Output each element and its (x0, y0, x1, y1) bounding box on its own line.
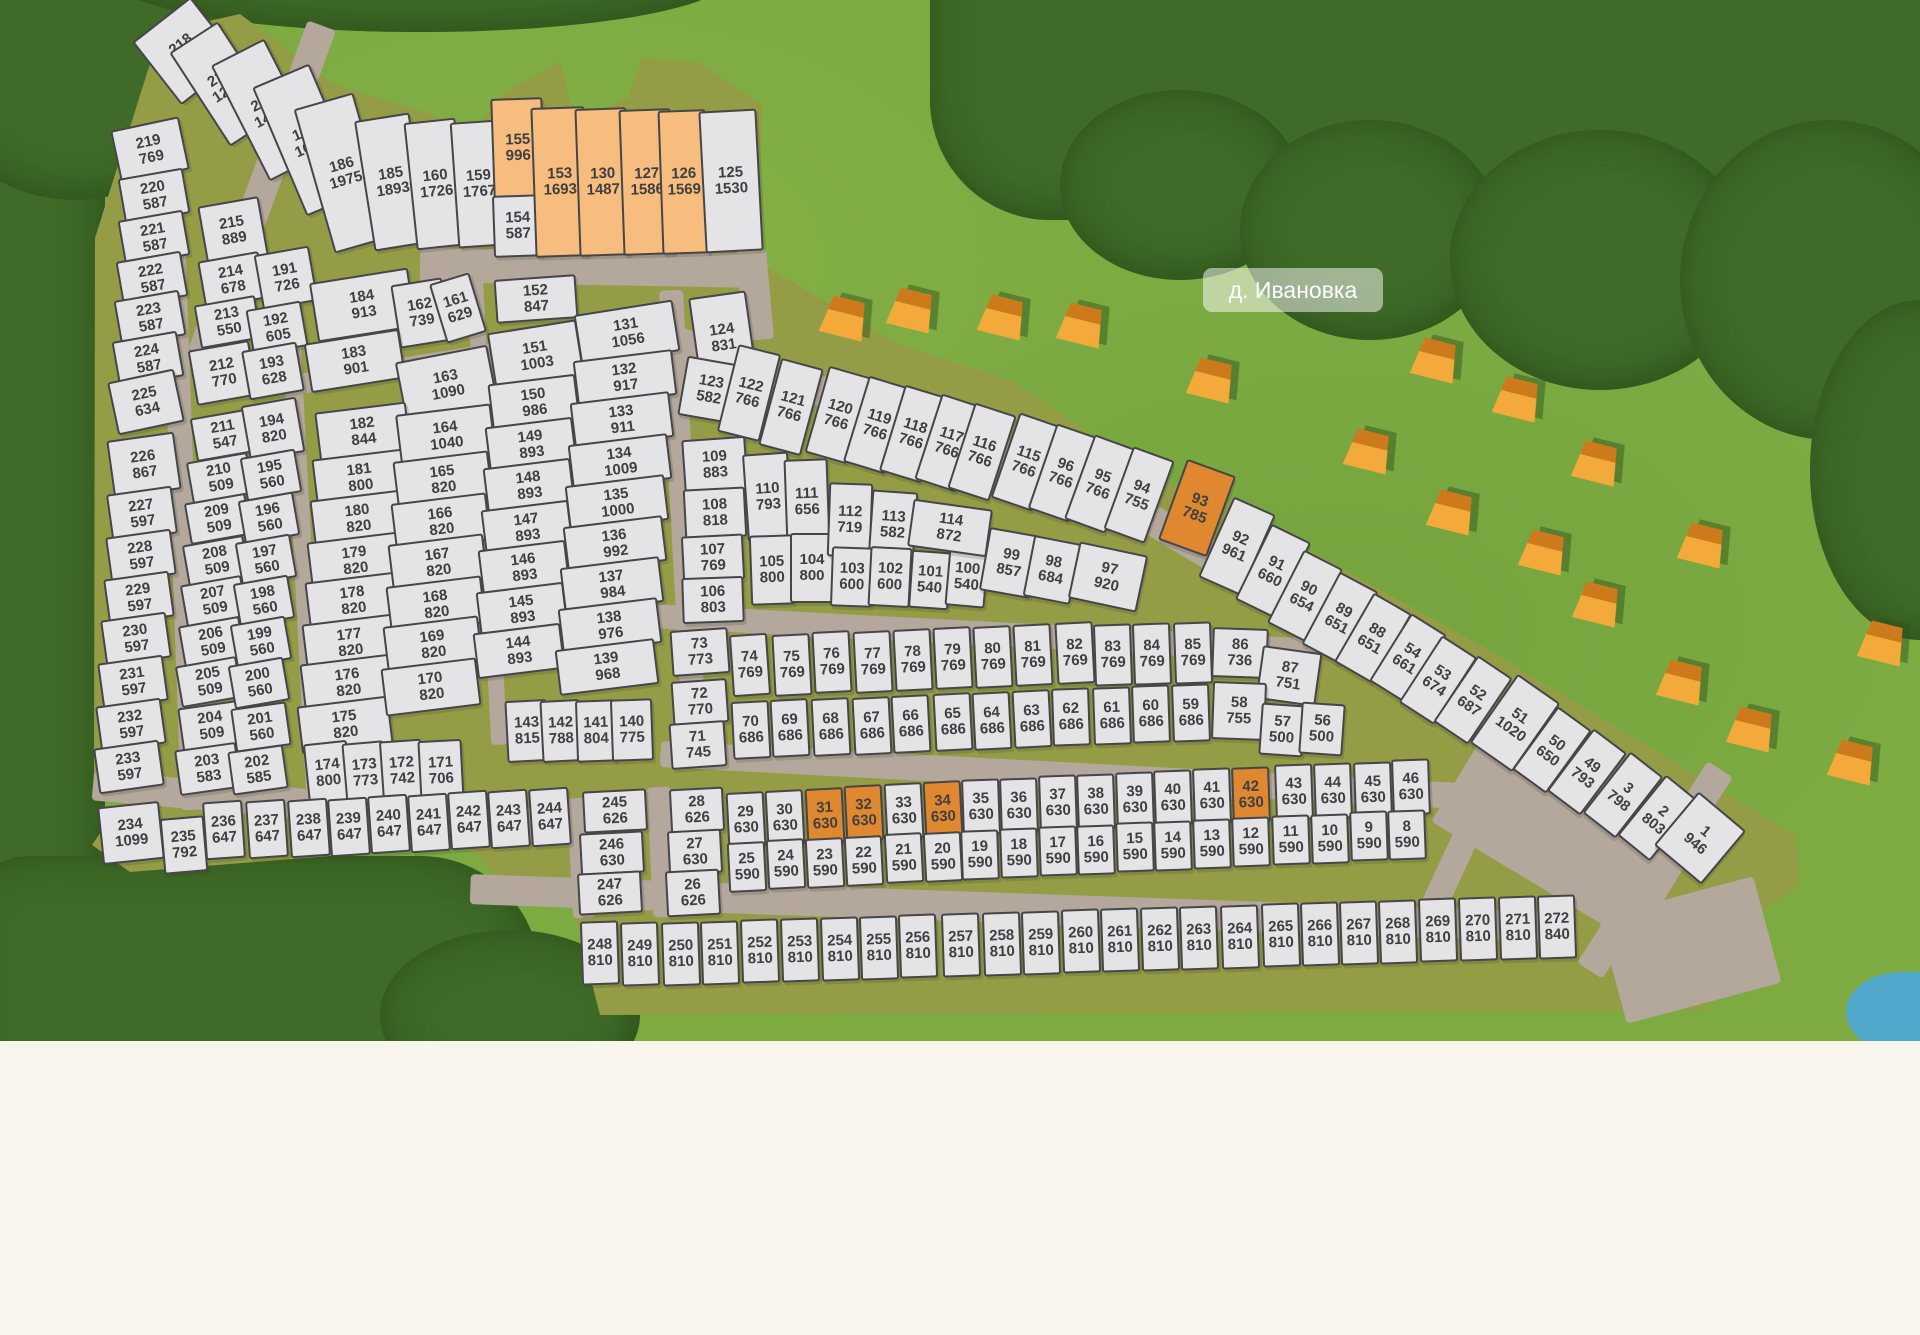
plot-area: 810 (587, 953, 613, 970)
plot-area: 560 (249, 640, 276, 660)
plot-21[interactable]: 21590 (884, 832, 925, 884)
plot-70[interactable]: 70686 (731, 700, 772, 760)
plot-11[interactable]: 11590 (1271, 814, 1311, 865)
plot-area: 769 (780, 664, 806, 681)
plot-66[interactable]: 66686 (891, 694, 932, 754)
plot-65[interactable]: 65686 (933, 692, 974, 752)
plot-area: 630 (1360, 790, 1386, 807)
plot-area: 647 (255, 828, 281, 846)
plot-241[interactable]: 241647 (407, 793, 451, 854)
plot-area: 810 (1107, 940, 1133, 957)
plot-area: 1893 (376, 179, 411, 200)
plot-74[interactable]: 74769 (729, 633, 771, 697)
plot-area: 560 (254, 558, 281, 578)
plot-area: 500 (1268, 729, 1294, 747)
plot-247[interactable]: 247626 (577, 870, 643, 915)
plot-85[interactable]: 85769 (1173, 621, 1213, 684)
plot-area: 630 (1281, 792, 1307, 809)
plot-area: 810 (1505, 928, 1531, 945)
plot-area: 509 (206, 517, 233, 537)
plot-242[interactable]: 242647 (447, 790, 491, 851)
plot-area: 893 (507, 649, 534, 668)
plot-area: 1003 (520, 353, 555, 374)
plot-area: 647 (497, 818, 523, 836)
plot-251[interactable]: 251810 (700, 920, 740, 985)
plot-area: 585 (246, 768, 273, 787)
plot-area: 810 (1307, 934, 1333, 951)
plot-area: 1569 (667, 181, 701, 198)
plot-105[interactable]: 105800 (749, 534, 795, 605)
plot-area: 769 (861, 661, 887, 678)
plot-77[interactable]: 77769 (852, 630, 893, 694)
plot-83[interactable]: 83769 (1093, 623, 1133, 686)
plot-area: 630 (1238, 795, 1264, 812)
plot-19[interactable]: 19590 (960, 829, 1000, 880)
plot-25[interactable]: 25590 (727, 841, 768, 893)
plot-152[interactable]: 152847 (494, 274, 579, 324)
plot-area: 810 (1186, 938, 1212, 955)
plot-area: 800 (759, 570, 785, 587)
plot-240[interactable]: 240647 (367, 794, 411, 855)
plot-40[interactable]: 40630 (1153, 769, 1193, 826)
plot-236[interactable]: 236647 (202, 800, 246, 861)
plot-area: 1099 (114, 831, 149, 850)
plot-261[interactable]: 261810 (1100, 907, 1140, 972)
plot-area: 560 (249, 725, 276, 744)
plot-270[interactable]: 270810 (1458, 896, 1498, 961)
plot-area: 739 (409, 311, 436, 331)
plot-28[interactable]: 28626 (669, 787, 725, 834)
plot-area: 883 (703, 464, 729, 482)
plot-37[interactable]: 37630 (1038, 774, 1078, 831)
plot-256[interactable]: 256810 (898, 913, 938, 978)
plot-area: 820 (431, 478, 458, 497)
plot-area: 597 (130, 512, 157, 531)
plot-area: 597 (127, 596, 154, 615)
plot-42[interactable]: 42630 (1231, 766, 1271, 823)
plot-80[interactable]: 80769 (972, 625, 1013, 689)
plot-271[interactable]: 271810 (1498, 895, 1538, 960)
plot-259[interactable]: 259810 (1021, 910, 1061, 975)
plot-239[interactable]: 239647 (327, 797, 371, 858)
plot-43[interactable]: 43630 (1274, 763, 1314, 820)
plot-area: 686 (1138, 714, 1164, 731)
plot-area: 500 (1308, 728, 1334, 746)
plot-67[interactable]: 67686 (852, 696, 893, 756)
plot-area: 628 (261, 369, 288, 389)
plot-area: 590 (774, 863, 800, 880)
plot-area: 769 (1100, 655, 1126, 672)
plot-35[interactable]: 35630 (961, 778, 1001, 835)
plot-area: 590 (1160, 846, 1186, 863)
plot-46[interactable]: 46630 (1391, 758, 1431, 815)
plot-area: 792 (172, 844, 198, 862)
plot-area: 684 (1037, 568, 1065, 588)
plot-258[interactable]: 258810 (982, 911, 1022, 976)
plot-area: 597 (119, 723, 146, 742)
plot-area: 547 (212, 433, 239, 453)
plot-area: 590 (892, 857, 918, 874)
plot-area: 686 (1058, 717, 1084, 734)
plot-17[interactable]: 17590 (1038, 825, 1078, 876)
plot-202[interactable]: 202585 (227, 744, 289, 795)
plot-76[interactable]: 76769 (811, 630, 852, 694)
plot-245[interactable]: 245626 (582, 788, 648, 833)
plot-area: 831 (711, 336, 738, 355)
plot-20[interactable]: 20590 (923, 831, 964, 883)
plot-84[interactable]: 84769 (1132, 622, 1172, 685)
plot-263[interactable]: 263810 (1179, 905, 1219, 970)
plot-area: 810 (1385, 932, 1411, 949)
plot-36[interactable]: 36630 (999, 777, 1039, 834)
plot-area: 1090 (431, 382, 467, 404)
plot-area: 736 (1227, 653, 1253, 670)
plot-area: 560 (257, 516, 284, 536)
plot-26[interactable]: 26626 (665, 869, 721, 918)
plot-191[interactable]: 191726 (254, 246, 319, 311)
plot-area: 1040 (429, 434, 464, 454)
plot-22[interactable]: 22590 (844, 835, 885, 887)
plot-61[interactable]: 61686 (1092, 686, 1132, 745)
plot-237[interactable]: 237647 (245, 799, 289, 860)
plot-area: 630 (1160, 798, 1186, 815)
plot-number: 58 (1231, 695, 1248, 712)
plot-area: 913 (351, 303, 378, 323)
plot-39[interactable]: 39630 (1115, 771, 1155, 828)
plot-252[interactable]: 252810 (740, 918, 780, 983)
plot-area: 976 (598, 624, 625, 643)
plot-69[interactable]: 69686 (770, 698, 811, 758)
plot-area: 770 (211, 371, 238, 391)
plot-area: 810 (627, 954, 653, 971)
plot-area: 590 (813, 862, 839, 879)
plot-23[interactable]: 23590 (805, 837, 846, 889)
plot-area: 719 (837, 520, 863, 537)
plot-area: 509 (200, 640, 227, 660)
plot-area: 630 (600, 852, 626, 869)
plot-area: 810 (1227, 937, 1253, 954)
plot-56[interactable]: 56500 (1298, 702, 1346, 757)
plot-244[interactable]: 244647 (528, 787, 572, 848)
plot-257[interactable]: 257810 (941, 912, 981, 977)
plot-area: 590 (1238, 842, 1264, 859)
plot-44[interactable]: 44630 (1313, 762, 1353, 819)
plot-area: 810 (668, 954, 694, 971)
plot-area: 686 (899, 723, 925, 740)
plot-267[interactable]: 267810 (1339, 900, 1379, 965)
plot-area: 810 (827, 949, 853, 966)
plot-area: 509 (202, 599, 229, 619)
plot-area: 647 (538, 816, 564, 834)
plot-area: 810 (747, 951, 773, 968)
land-plot-map: 2187772171265216144719016771861975185189… (0, 0, 1920, 1335)
plot-area: 706 (429, 770, 455, 787)
plot-area: 901 (343, 359, 370, 379)
plot-253[interactable]: 253810 (780, 917, 820, 982)
plot-34[interactable]: 34630 (923, 780, 964, 838)
plot-area: 893 (519, 443, 546, 462)
plot-area: 590 (1278, 840, 1304, 857)
plot-number: 86 (1232, 637, 1249, 654)
plot-64[interactable]: 64686 (972, 691, 1013, 751)
plot-area: 686 (778, 727, 804, 744)
plot-area: 540 (916, 579, 942, 597)
plot-235[interactable]: 235792 (160, 815, 209, 875)
plot-area: 626 (598, 892, 624, 909)
plot-79[interactable]: 79769 (932, 626, 973, 690)
plot-area: 857 (995, 561, 1022, 581)
plot-73[interactable]: 73773 (669, 627, 730, 677)
plot-266[interactable]: 266810 (1300, 901, 1340, 966)
plot-area: 800 (799, 568, 824, 584)
plot-area: 647 (457, 819, 483, 837)
plot-15[interactable]: 15590 (1115, 821, 1155, 872)
plot-area: 889 (221, 229, 248, 249)
plot-249[interactable]: 249810 (620, 921, 660, 986)
plot-area: 634 (134, 399, 162, 420)
plot-area: 840 (1544, 927, 1570, 944)
plot-area: 769 (981, 656, 1007, 673)
plot-area: 820 (261, 427, 288, 447)
plot-10[interactable]: 10590 (1310, 813, 1350, 864)
plot-area: 597 (129, 554, 156, 573)
plot-area: 810 (707, 953, 733, 970)
plot-area: 626 (603, 810, 629, 827)
plot-area: 587 (142, 194, 169, 214)
plot-area: 1726 (419, 182, 454, 201)
plot-area: 815 (515, 730, 541, 747)
plot-area: 920 (1092, 574, 1120, 595)
plot-area: 820 (341, 599, 368, 618)
plot-area: 686 (1178, 713, 1204, 730)
plot-area: 810 (1147, 939, 1173, 956)
plot-area: 560 (247, 681, 274, 701)
plot-108[interactable]: 108818 (683, 486, 748, 539)
plot-area: 810 (1068, 941, 1094, 958)
village-label: д. Ивановка (1203, 268, 1383, 312)
plot-area: 600 (839, 577, 865, 594)
plot-area: 770 (688, 701, 714, 719)
plot-area: 590 (931, 856, 957, 873)
plot-area: 630 (852, 812, 878, 829)
plot-area: 1056 (611, 330, 646, 351)
plot-area: 810 (989, 944, 1015, 961)
plot-125[interactable]: 1251530 (698, 109, 763, 254)
plot-area: 820 (426, 561, 453, 580)
plot-area: 1693 (543, 181, 577, 198)
plot-area: 630 (1006, 806, 1032, 823)
plot-area: 818 (703, 512, 729, 529)
plot-14[interactable]: 14590 (1153, 820, 1193, 871)
plot-12[interactable]: 12590 (1231, 816, 1271, 867)
plot-area: 775 (619, 730, 645, 747)
plot-area: 540 (953, 576, 979, 594)
plot-262[interactable]: 262810 (1140, 906, 1180, 971)
plot-area: 810 (866, 948, 892, 965)
plot-area: 630 (1122, 800, 1148, 817)
plot-area: 647 (377, 823, 403, 841)
plot-72[interactable]: 72770 (671, 678, 730, 726)
plot-area: 600 (877, 576, 903, 593)
plot-area: 630 (1320, 791, 1346, 808)
plot-area: 803 (700, 600, 726, 617)
plot-246[interactable]: 246630 (579, 830, 645, 875)
plot-250[interactable]: 250810 (661, 921, 701, 986)
plot-area: 793 (756, 496, 782, 514)
plot-269[interactable]: 269810 (1418, 897, 1458, 962)
plot-area: 917 (613, 376, 640, 395)
plot-area: 590 (1317, 839, 1343, 856)
plot-area: 844 (351, 430, 378, 449)
plot-area: 726 (274, 276, 301, 296)
plot-area: 590 (1122, 847, 1148, 864)
plot-area: 804 (583, 731, 609, 748)
plot-area: 597 (124, 637, 151, 656)
plot-area: 968 (595, 665, 622, 684)
plot-243[interactable]: 243647 (487, 789, 531, 850)
plot-248[interactable]: 248810 (580, 920, 620, 985)
plot-area: 820 (346, 517, 373, 536)
plot-area: 647 (212, 829, 238, 847)
plot-102[interactable]: 102600 (867, 546, 912, 608)
plot-area: 769 (1139, 654, 1165, 671)
plot-18[interactable]: 18590 (999, 827, 1039, 878)
plot-area: 560 (252, 599, 279, 619)
plot-area: 893 (510, 608, 537, 627)
plot-area: 810 (787, 950, 813, 967)
plot-71[interactable]: 71745 (668, 720, 727, 770)
pond (1846, 972, 1920, 1052)
plot-area: 686 (819, 726, 845, 743)
plot-24[interactable]: 24590 (766, 838, 807, 890)
plot-81[interactable]: 81769 (1012, 623, 1053, 687)
plot-area: 992 (603, 542, 630, 561)
plot-area: 820 (419, 685, 446, 704)
plot-area: 773 (688, 651, 714, 669)
plot-area: 820 (336, 681, 363, 700)
plot-area: 678 (220, 278, 247, 298)
plot-area: 755 (1226, 711, 1252, 728)
plot-233[interactable]: 233597 (93, 740, 165, 795)
plot-area: 800 (316, 772, 343, 791)
plot-193[interactable]: 193628 (241, 342, 305, 401)
plot-63[interactable]: 63686 (1012, 689, 1053, 749)
plot-area: 686 (941, 721, 967, 738)
plot-area: 630 (1398, 787, 1424, 804)
plot-9[interactable]: 9590 (1349, 810, 1389, 861)
plot-area: 630 (1083, 802, 1109, 819)
plot-area: 630 (968, 807, 994, 824)
plot-109[interactable]: 109883 (681, 436, 749, 494)
plot-area: 509 (197, 680, 224, 700)
plot-78[interactable]: 78769 (892, 628, 933, 692)
plot-area: 647 (417, 822, 443, 840)
plot-106[interactable]: 106803 (681, 576, 745, 624)
plot-area: 587 (505, 226, 531, 243)
plot-254[interactable]: 254810 (820, 916, 860, 981)
plot-area: 810 (1268, 935, 1294, 952)
plot-59[interactable]: 59686 (1171, 683, 1211, 742)
plot-8[interactable]: 8590 (1387, 809, 1427, 860)
plot-62[interactable]: 62686 (1051, 687, 1091, 746)
plot-area: 630 (734, 819, 760, 836)
plot-area: 769 (701, 557, 727, 574)
plot-area: 820 (421, 643, 448, 662)
plot-area: 590 (1083, 850, 1109, 867)
plot-area: 810 (1028, 943, 1054, 960)
plot-area: 583 (196, 767, 223, 786)
plot-area: 893 (517, 484, 544, 503)
plot-area: 597 (117, 765, 144, 784)
plot-area: 1487 (586, 181, 620, 198)
plot-area: 656 (794, 502, 820, 519)
plot-area: 686 (980, 720, 1006, 737)
plot-area: 769 (1180, 653, 1206, 670)
plot-82[interactable]: 82769 (1054, 621, 1095, 685)
plot-area: 686 (739, 729, 765, 746)
plot-area: 686 (860, 725, 886, 742)
plot-area: 590 (1006, 853, 1032, 870)
plot-area: 867 (132, 463, 159, 482)
plot-area: 810 (905, 946, 931, 963)
plot-75[interactable]: 75769 (771, 633, 812, 697)
plot-area: 590 (852, 860, 878, 877)
plot-265[interactable]: 265810 (1261, 902, 1301, 967)
plot-area: 630 (1199, 796, 1225, 813)
plot-area: 509 (204, 559, 231, 579)
plot-area: 647 (337, 826, 363, 844)
plot-area: 590 (1045, 851, 1071, 868)
plot-area: 769 (1063, 652, 1089, 669)
plot-area: 984 (600, 583, 627, 602)
plot-58[interactable]: 58755 (1211, 681, 1267, 741)
plot-264[interactable]: 264810 (1220, 904, 1260, 969)
plot-area: 590 (1394, 835, 1420, 852)
plot-272[interactable]: 272840 (1537, 894, 1577, 959)
plot-268[interactable]: 268810 (1378, 899, 1418, 964)
plot-area: 996 (505, 148, 531, 165)
plot-area: 582 (695, 388, 722, 408)
plot-area: 1530 (714, 180, 748, 198)
plot-area: 509 (208, 476, 235, 496)
plot-60[interactable]: 60686 (1131, 684, 1171, 743)
plot-area: 769 (1021, 654, 1047, 671)
plot-255[interactable]: 255810 (859, 915, 899, 980)
plot-140[interactable]: 140775 (610, 698, 654, 761)
plot-area: 986 (522, 401, 549, 420)
plot-area: 630 (773, 817, 799, 834)
plot-260[interactable]: 260810 (1061, 908, 1101, 973)
plot-area: 769 (738, 664, 764, 682)
plot-38[interactable]: 38630 (1076, 773, 1116, 830)
plot-area: 590 (1356, 836, 1382, 853)
plot-area: 630 (813, 815, 839, 832)
plot-area: 810 (1346, 933, 1372, 950)
plot-area: 788 (549, 730, 575, 747)
plot-41[interactable]: 41630 (1192, 767, 1232, 824)
plot-68[interactable]: 68686 (811, 697, 852, 757)
plot-area: 872 (935, 526, 962, 545)
plot-16[interactable]: 16590 (1076, 824, 1116, 875)
plot-32[interactable]: 32630 (844, 784, 885, 842)
plot-area: 769 (820, 661, 846, 678)
plot-234[interactable]: 2341099 (97, 801, 165, 865)
plot-area: 773 (353, 772, 379, 790)
plot-13[interactable]: 13590 (1192, 818, 1232, 869)
plot-238[interactable]: 238647 (287, 798, 331, 859)
plot-area: 893 (512, 566, 539, 585)
plot-area: 911 (610, 419, 636, 438)
